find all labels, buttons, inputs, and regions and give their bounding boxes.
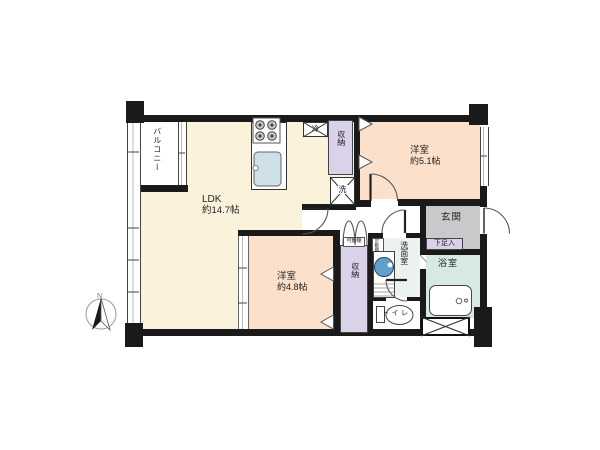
- ldk-name-label: LDK: [202, 194, 221, 205]
- wash-basin-icon: [374, 258, 394, 297]
- window-ticks: [127, 122, 487, 329]
- ldk-size-label: 約14.7帖: [202, 206, 240, 216]
- bedroom2-name-label: 洋室: [277, 272, 296, 282]
- toilet-label: トイレ: [382, 310, 411, 318]
- bathtub-fittings-icon: [456, 298, 467, 304]
- floor-plan: バルコニー LDK 約14.7帖 洋室 約5.1帖 洋室 約4.8帖 収納 冷 …: [0, 0, 600, 450]
- sink-icon: [253, 152, 281, 186]
- shoe-cabinet-label: 下足入: [426, 240, 463, 248]
- washroom-label: 洗面室: [399, 241, 408, 265]
- balcony-label: バルコニー: [152, 127, 161, 172]
- bedroom1-size-label: 約5.1帖: [410, 157, 441, 167]
- closet-lower-label: 収納: [350, 262, 359, 278]
- compass-north-label: N: [97, 293, 102, 301]
- north-compass-icon: [86, 298, 116, 330]
- closet-upper-label: 収納: [336, 130, 345, 146]
- bedroom1-name-label: 洋室: [410, 146, 429, 156]
- stove-icon: [253, 118, 280, 143]
- bath-label: 浴室: [438, 259, 458, 269]
- plan-detail-overlay: [0, 0, 600, 450]
- shelf-side-label: 可動棚: [374, 239, 379, 252]
- shelf-upper-label: 可動棚: [343, 239, 365, 245]
- x-symbols: [303, 122, 470, 336]
- washer-label: 洗: [330, 186, 355, 195]
- entrance-label: 玄関: [441, 213, 462, 223]
- bedroom2-size-label: 約4.8帖: [277, 283, 308, 293]
- refrigerator-label: 冷: [303, 125, 328, 133]
